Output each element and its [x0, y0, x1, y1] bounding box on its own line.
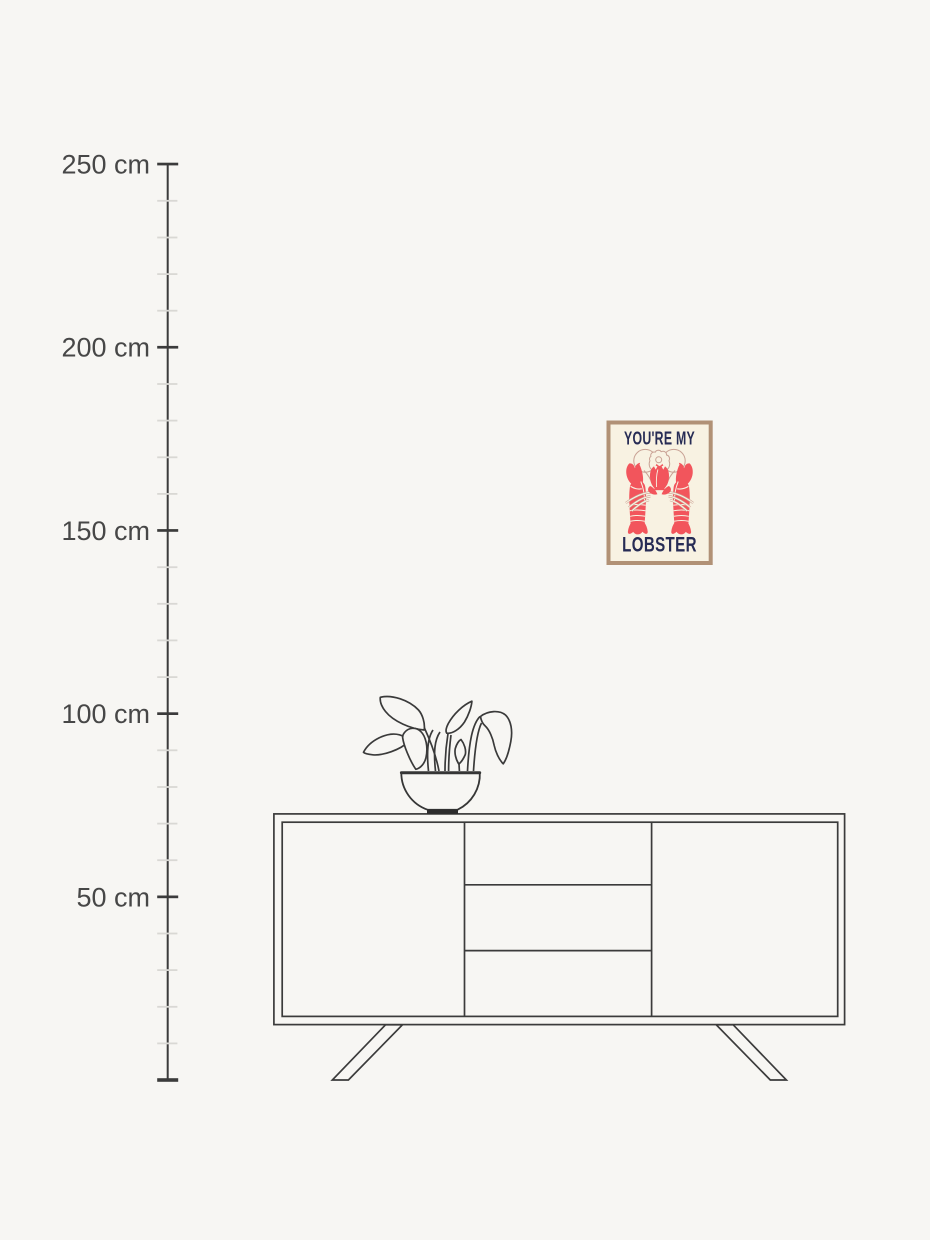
- svg-text:50 cm: 50 cm: [76, 882, 150, 912]
- svg-text:200 cm: 200 cm: [61, 333, 150, 363]
- svg-text:150 cm: 150 cm: [61, 516, 150, 546]
- svg-text:100 cm: 100 cm: [61, 699, 150, 729]
- svg-text:250 cm: 250 cm: [61, 150, 150, 180]
- svg-text:YOU'RE MY: YOU'RE MY: [624, 429, 695, 449]
- svg-text:LOBSTER: LOBSTER: [622, 532, 697, 556]
